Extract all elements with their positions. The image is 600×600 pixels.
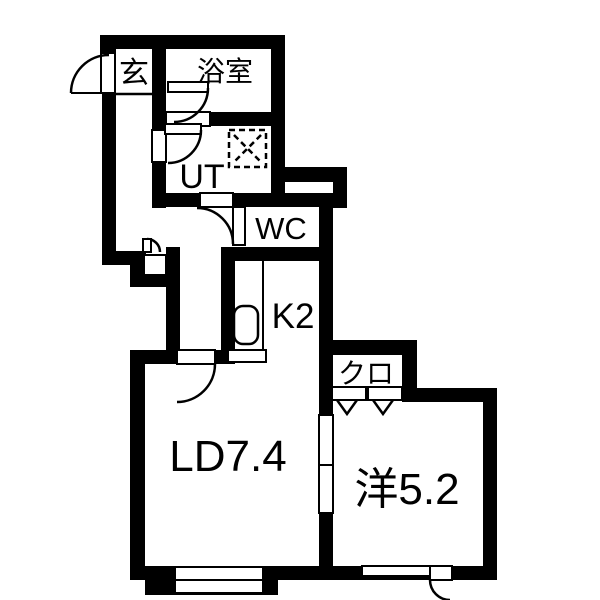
label-wc: WC: [255, 211, 307, 246]
west-window: [362, 566, 430, 576]
kitchen-counter-cap: [228, 350, 266, 362]
west-door-arc: [430, 580, 450, 600]
floorplan-svg: 玄 浴室 UT WC K2 クロ LD7.4 洋5.2: [0, 0, 600, 600]
label-living-dining: LD7.4: [169, 432, 286, 481]
west-door-gap: [430, 566, 452, 580]
wc-door-arc: [197, 208, 233, 244]
wall-corner-stub: [333, 167, 347, 208]
ld-door-threshold: [177, 350, 215, 364]
closet-chevron-left: [337, 400, 357, 414]
ut-door-gap: [152, 130, 166, 162]
wall-genkan-bath-divider: [152, 35, 166, 208]
meter-door-leaf: [143, 239, 151, 252]
wall-top: [100, 35, 285, 49]
label-genkan: 玄: [119, 57, 149, 90]
closet-chevron-right: [373, 400, 393, 414]
wc-door-leaf: [233, 207, 245, 245]
entrance-door-leaf: [101, 53, 115, 93]
wall-k2-left: [221, 247, 235, 357]
wall-wc-bottom: [221, 247, 333, 261]
wall-west-top: [402, 388, 497, 402]
kitchen-sink: [234, 306, 258, 344]
floorplan-page: 玄 浴室 UT WC K2 クロ LD7.4 洋5.2: [0, 0, 600, 600]
wall-bath-bottom: [210, 112, 271, 126]
label-bathroom: 浴室: [197, 56, 253, 87]
label-kitchen: K2: [272, 297, 315, 336]
wall-corridor: [166, 247, 180, 364]
wall-ld-left: [130, 350, 145, 580]
label-western-room: 洋5.2: [354, 465, 459, 514]
wall-right-upper: [271, 35, 285, 193]
ld-door-arc: [177, 364, 215, 402]
ut-door-leaf: [165, 124, 201, 134]
wall-left-upper: [102, 91, 116, 265]
label-closet: クロ: [338, 358, 394, 389]
wall-west-right: [483, 388, 497, 580]
label-utility: UT: [179, 158, 224, 196]
meter-box: [144, 255, 166, 275]
